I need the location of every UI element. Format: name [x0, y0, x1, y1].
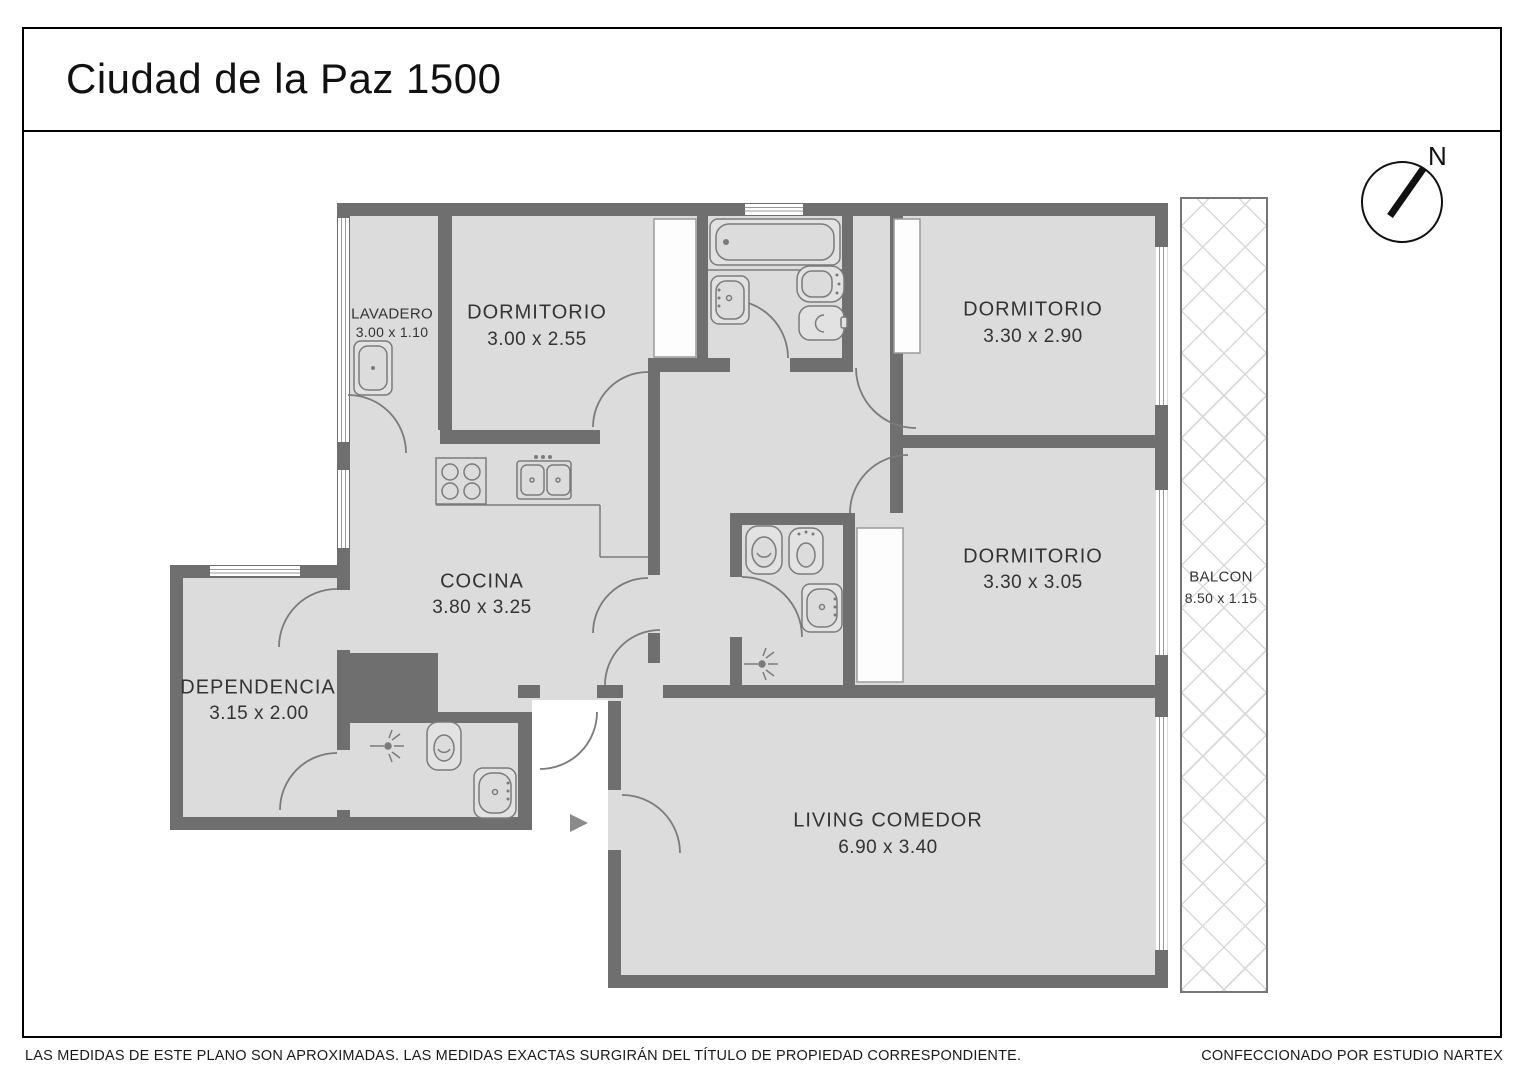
room-label-dependencia: DEPENDENCIA	[180, 677, 335, 700]
floor-plan-page: Ciudad de la Paz 1500	[0, 0, 1528, 1080]
room-dims-dormitorio-3: 3.30 x 3.05	[983, 572, 1083, 594]
compass-north-label: N	[1428, 141, 1447, 172]
room-label-dormitorio-2: DORMITORIO	[963, 299, 1103, 322]
room-label-cocina: COCINA	[440, 571, 524, 594]
bathroom-2-sink-icon	[802, 584, 842, 632]
room-label-balcon: BALCON	[1189, 569, 1253, 586]
service-sink-icon	[474, 768, 516, 818]
toilet-icon	[797, 266, 844, 302]
room-label-dormitorio-3: DORMITORIO	[963, 546, 1103, 569]
bathtub-icon	[708, 219, 842, 270]
room-dims-lavadero: 3.00 x 1.10	[356, 324, 429, 340]
floor-plan-drawing	[0, 0, 1528, 1080]
bidet-icon	[799, 306, 847, 340]
laundry-sink-icon	[354, 341, 392, 395]
room-dims-balcon: 8.50 x 1.15	[1185, 590, 1258, 606]
room-dims-cocina: 3.80 x 3.25	[432, 597, 532, 619]
room-dims-dormitorio-1: 3.00 x 2.55	[487, 329, 587, 351]
bidet-2-icon	[789, 528, 823, 574]
room-label-living: LIVING COMEDOR	[793, 810, 983, 833]
footer: LAS MEDIDAS DE ESTE PLANO SON APROXIMADA…	[25, 1048, 1503, 1064]
room-dims-living: 6.90 x 3.40	[838, 837, 938, 859]
toilet-2-icon	[746, 526, 782, 574]
room-label-dormitorio-1: DORMITORIO	[467, 302, 607, 325]
kitchen-sink-icon	[517, 455, 571, 499]
room-dims-dependencia: 3.15 x 2.00	[209, 703, 309, 725]
service-toilet-icon	[427, 722, 461, 770]
footer-disclaimer: LAS MEDIDAS DE ESTE PLANO SON APROXIMADA…	[25, 1048, 1021, 1064]
compass-icon	[1362, 162, 1442, 242]
bathroom-sink-icon	[711, 276, 749, 324]
room-dims-dormitorio-2: 3.30 x 2.90	[983, 326, 1083, 348]
footer-credit: CONFECCIONADO POR ESTUDIO NARTEX	[1201, 1048, 1503, 1064]
stove-icon	[436, 458, 486, 504]
room-label-lavadero: LAVADERO	[351, 306, 433, 323]
entry-arrow-icon	[570, 814, 588, 832]
